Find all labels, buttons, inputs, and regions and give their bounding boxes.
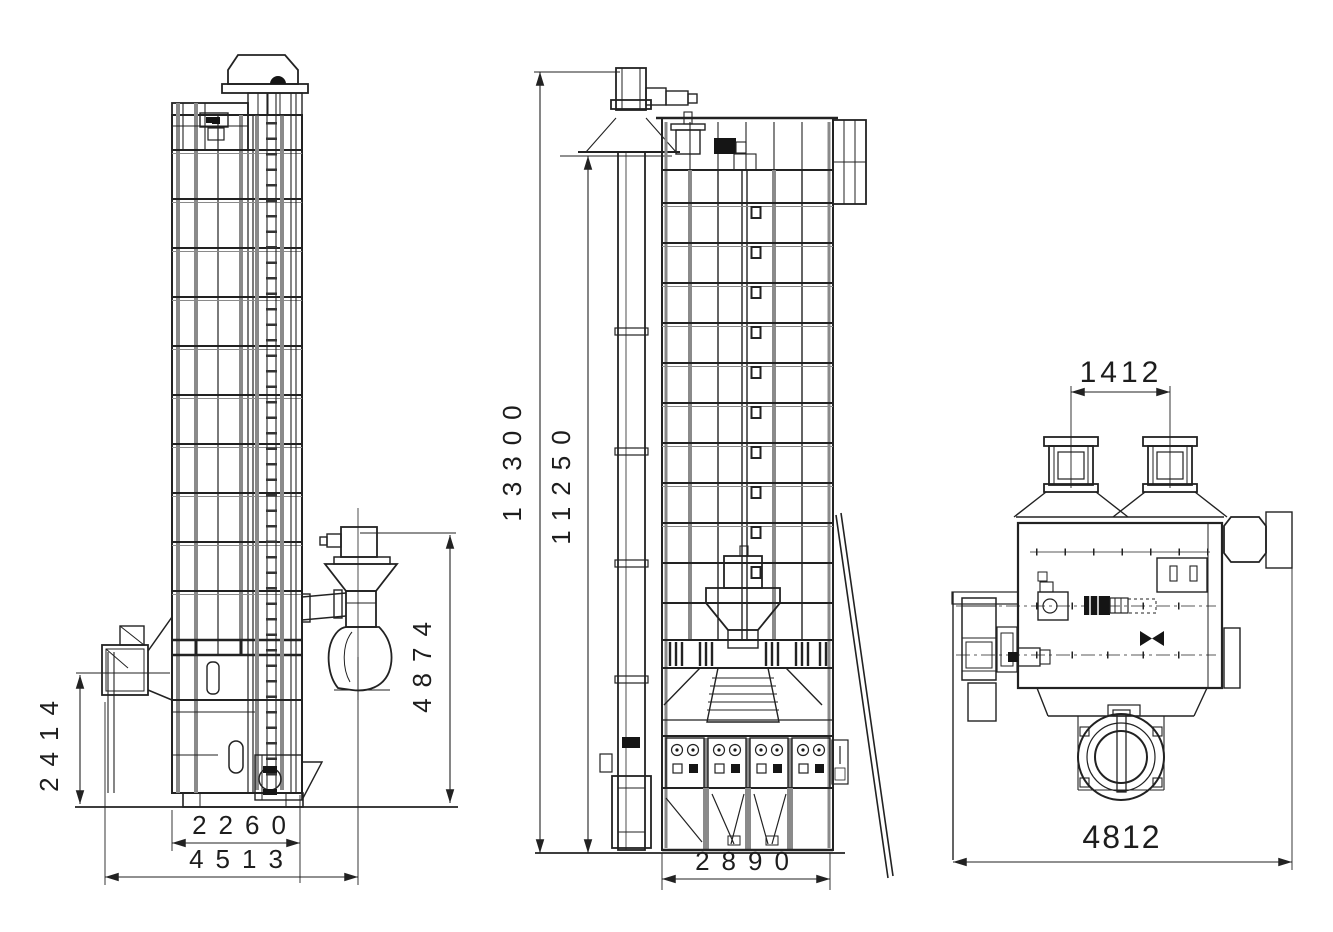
front-control-panels xyxy=(666,738,848,850)
inspection-door xyxy=(207,662,219,694)
dim-label-tower-height: 11250 xyxy=(546,419,576,544)
plan-blower xyxy=(1037,688,1207,800)
plan-elevator-assembly xyxy=(952,592,1050,860)
side-cyclone-assembly xyxy=(302,508,397,700)
head-drive-motor xyxy=(646,88,666,105)
plan-body xyxy=(956,517,1240,688)
side-roof-box xyxy=(208,128,224,140)
side-dimensions: 2414 4874 2260 4513 xyxy=(34,533,456,885)
control-panel xyxy=(792,738,830,788)
side-elevator-head xyxy=(200,55,308,127)
dim-label-body-depth: 2260 xyxy=(192,810,298,840)
roof-motor xyxy=(714,138,736,154)
grain-dryer-three-view-drawing: 2414 4874 2260 4513 xyxy=(0,0,1333,932)
technical-drawing-page: 2414 4874 2260 4513 xyxy=(0,0,1333,932)
dim-label-hopper-pitch: 1412 xyxy=(1080,356,1163,389)
support-brace xyxy=(836,513,893,878)
discharge-chute xyxy=(302,762,322,800)
dim-label-overall-height: 13300 xyxy=(497,394,527,521)
control-panel xyxy=(750,738,788,788)
plan-exhaust-fan xyxy=(1224,512,1292,568)
plan-motor xyxy=(1084,596,1110,615)
dim-label-tower-width: 2890 xyxy=(695,846,801,876)
head-pulley xyxy=(270,76,286,84)
front-tower-body xyxy=(656,112,866,850)
plan-access-panel xyxy=(1157,558,1207,592)
plan-view: 1412 4812 xyxy=(952,356,1292,870)
dim-label-fan-axis-height: 2414 xyxy=(34,690,64,792)
side-roof-motor xyxy=(212,117,220,124)
fan-funnel xyxy=(148,617,172,700)
side-view: 2414 4874 2260 4513 xyxy=(34,55,458,885)
valve-symbol xyxy=(1140,631,1164,646)
roof-vent xyxy=(676,130,700,154)
blower-shaft xyxy=(1117,714,1126,792)
dim-label-cyclone-top-height: 4874 xyxy=(407,611,437,713)
dim-label-overall-depth: 4513 xyxy=(189,844,295,874)
front-elevator-leg xyxy=(578,68,697,850)
cyclone-elbow-duct xyxy=(329,627,392,690)
control-panel xyxy=(666,738,704,788)
front-discharge-bays xyxy=(662,788,833,850)
side-intake-fan xyxy=(76,617,172,793)
front-view: 13300 11250 2890 xyxy=(497,68,893,890)
burner-capsule xyxy=(229,741,243,773)
control-panel xyxy=(708,738,746,788)
dim-label-overall-width: 4812 xyxy=(1082,819,1161,855)
